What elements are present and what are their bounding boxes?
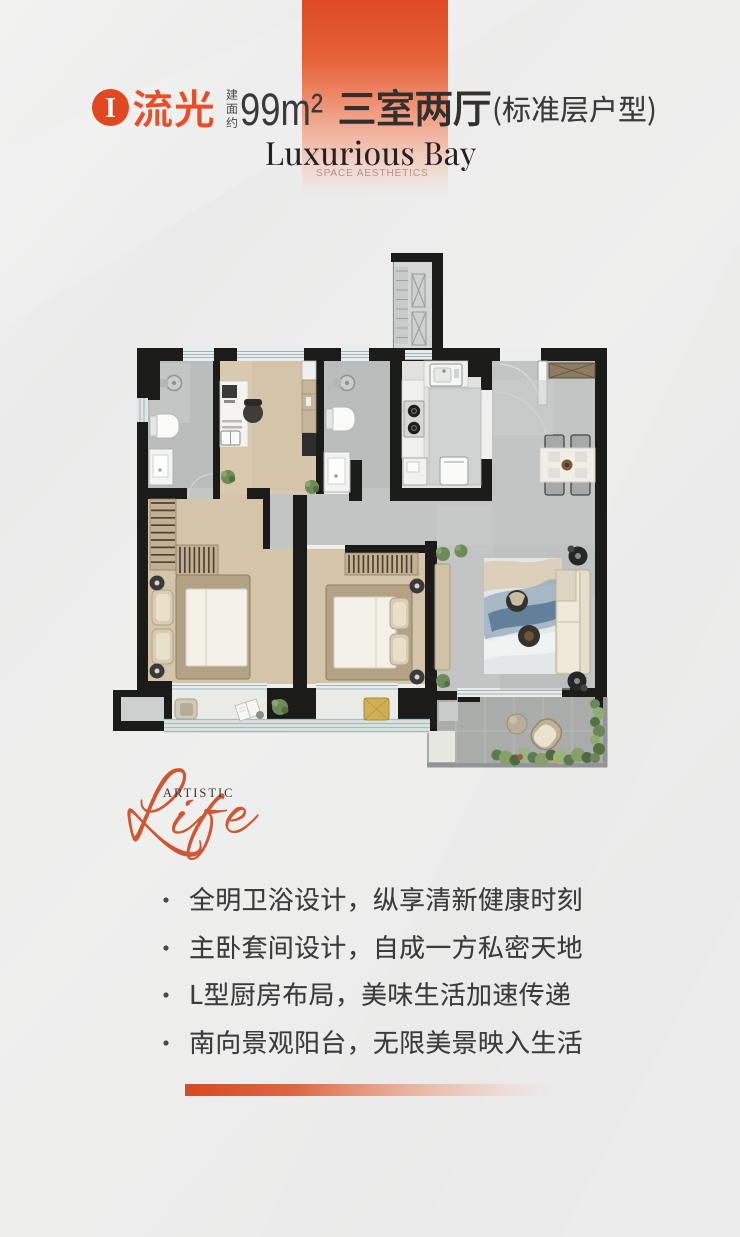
svg-text:SPACE AESTHETICS: SPACE AESTHETICS: [316, 168, 429, 179]
svg-text:ARTISTIC: ARTISTIC: [163, 786, 235, 800]
svg-text:I: I: [105, 93, 116, 124]
svg-text:99m²: 99m²: [240, 84, 323, 135]
